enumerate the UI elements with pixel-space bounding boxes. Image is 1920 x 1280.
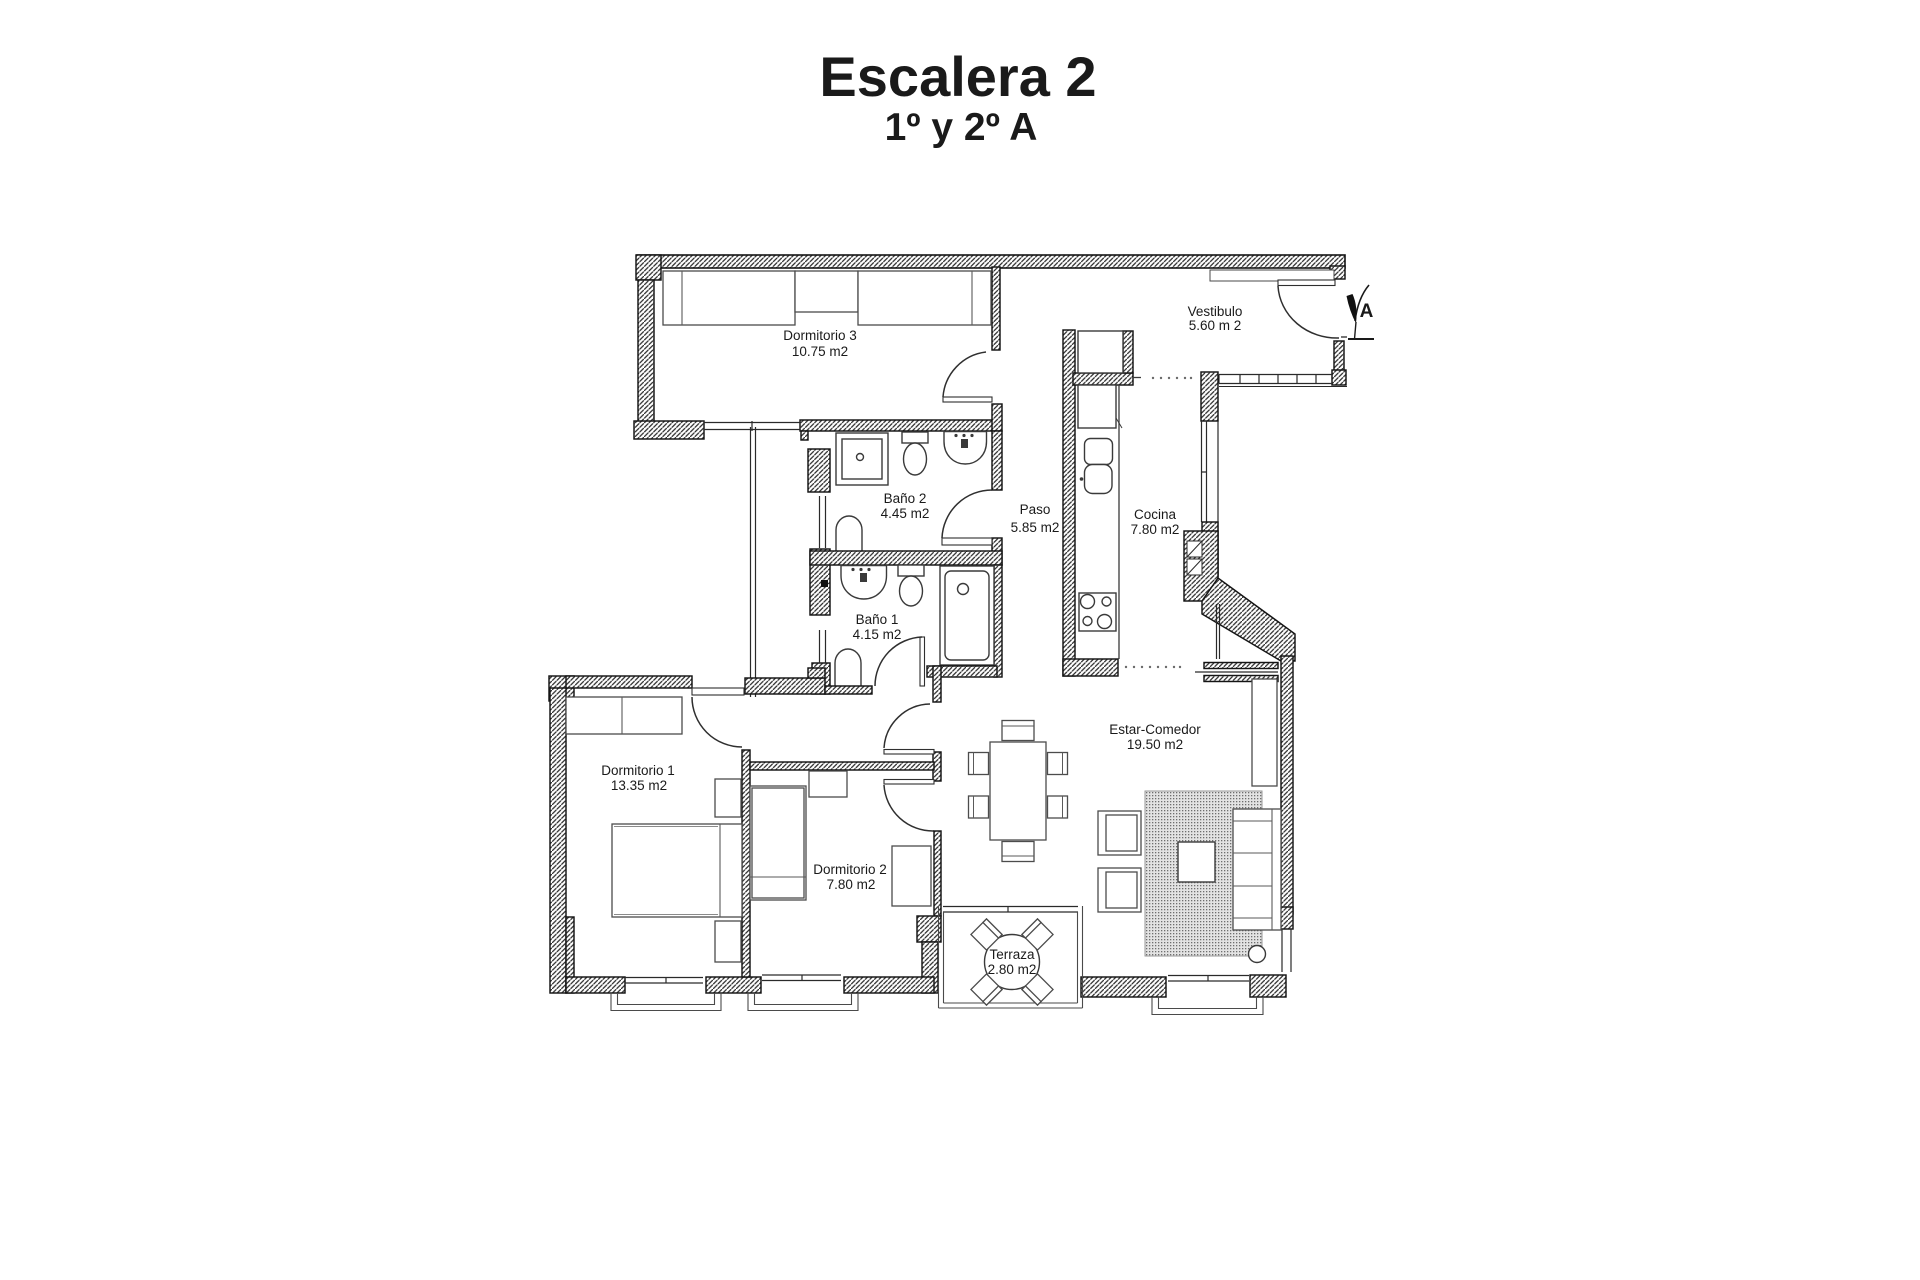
svg-text:4.15 m2: 4.15 m2 [853,627,902,642]
svg-text:Escalera 2: Escalera 2 [819,45,1096,108]
svg-text:10.75 m2: 10.75 m2 [792,344,848,359]
svg-text:7.80 m2: 7.80 m2 [827,877,876,892]
svg-text:13.35 m2: 13.35 m2 [611,778,667,793]
svg-text:Dormitorio 3: Dormitorio 3 [783,328,857,343]
svg-text:Estar-Comedor: Estar-Comedor [1109,722,1201,737]
svg-text:Vestibulo: Vestibulo [1188,304,1243,319]
svg-text:1º y 2º A: 1º y 2º A [885,106,1038,149]
svg-text:19.50 m2: 19.50 m2 [1127,737,1183,752]
svg-text:4.45 m2: 4.45 m2 [881,506,930,521]
svg-text:5.85 m2: 5.85 m2 [1011,520,1060,535]
svg-text:A: A [1360,301,1374,322]
svg-text:5.60 m 2: 5.60 m 2 [1189,318,1242,333]
svg-text:Dormitorio 1: Dormitorio 1 [601,763,675,778]
svg-text:Dormitorio 2: Dormitorio 2 [813,862,887,877]
svg-text:Cocina: Cocina [1134,507,1177,522]
svg-text:2.80 m2: 2.80 m2 [988,962,1037,977]
svg-text:Paso: Paso [1020,502,1051,517]
svg-text:Baño 2: Baño 2 [884,491,927,506]
svg-text:Baño 1: Baño 1 [856,612,899,627]
svg-text:Terraza: Terraza [989,947,1035,962]
svg-text:7.80 m2: 7.80 m2 [1131,522,1180,537]
